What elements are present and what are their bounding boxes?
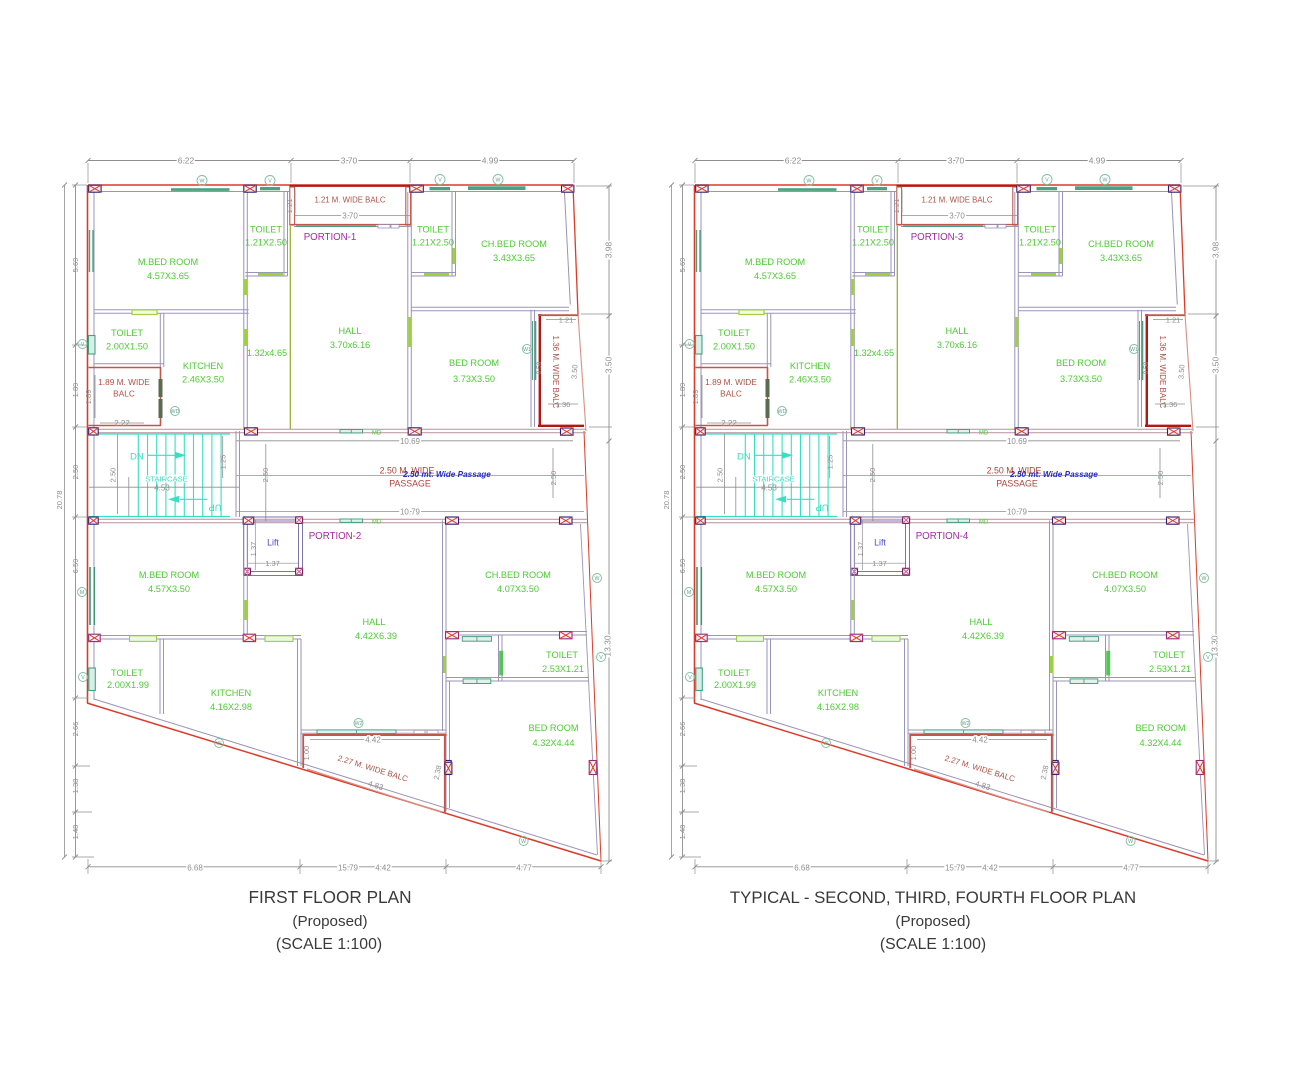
- svg-text:W1: W1: [1130, 347, 1138, 353]
- svg-text:3.98: 3.98: [604, 241, 614, 258]
- svg-text:W: W: [1202, 576, 1207, 582]
- svg-text:WD: WD: [171, 409, 180, 415]
- svg-text:4.42: 4.42: [375, 863, 391, 872]
- svg-text:2.50: 2.50: [549, 471, 558, 486]
- svg-text:10.79: 10.79: [1007, 508, 1028, 517]
- svg-text:1.32x4.65: 1.32x4.65: [247, 348, 287, 358]
- svg-text:W: W: [595, 576, 600, 582]
- svg-text:1.21X2.50: 1.21X2.50: [852, 238, 894, 248]
- svg-text:0.50: 0.50: [1143, 361, 1150, 374]
- svg-text:4.99: 4.99: [1089, 156, 1106, 166]
- svg-text:HALL: HALL: [363, 617, 386, 627]
- svg-text:2.50 mt. Wide Passage: 2.50 mt. Wide Passage: [1009, 470, 1098, 479]
- svg-text:MD: MD: [372, 431, 382, 437]
- svg-text:2.46X3.50: 2.46X3.50: [789, 375, 831, 385]
- svg-text:4.42: 4.42: [982, 863, 998, 872]
- svg-text:UP: UP: [208, 502, 221, 513]
- svg-text:BED ROOM: BED ROOM: [528, 723, 578, 733]
- svg-text:TOILET: TOILET: [250, 225, 282, 235]
- svg-text:TOILET: TOILET: [718, 668, 750, 678]
- svg-text:M.BED ROOM: M.BED ROOM: [139, 570, 199, 580]
- svg-text:4.53: 4.53: [761, 484, 777, 493]
- svg-text:1.89: 1.89: [71, 383, 80, 398]
- svg-text:2.00X1.99: 2.00X1.99: [714, 680, 756, 690]
- svg-text:0.50: 0.50: [536, 361, 543, 374]
- svg-text:M: M: [687, 590, 691, 596]
- svg-text:M.BED ROOM: M.BED ROOM: [138, 257, 198, 267]
- svg-text:15.79: 15.79: [945, 863, 966, 872]
- svg-text:2.00X1.99: 2.00X1.99: [107, 680, 149, 690]
- svg-text:KITCHEN: KITCHEN: [818, 688, 858, 698]
- svg-text:M: M: [80, 590, 84, 596]
- svg-text:3.50: 3.50: [604, 356, 614, 373]
- svg-text:DN: DN: [737, 451, 751, 462]
- svg-text:W: W: [200, 179, 205, 185]
- svg-text:1.21X2.50: 1.21X2.50: [412, 238, 454, 248]
- svg-text:2.53X1.21: 2.53X1.21: [542, 664, 584, 674]
- svg-text:Lift: Lift: [267, 538, 279, 548]
- svg-text:1.21: 1.21: [559, 316, 574, 325]
- svg-text:3.70x6.16: 3.70x6.16: [937, 340, 977, 350]
- svg-text:3.50: 3.50: [1211, 356, 1221, 373]
- svg-text:TOILET: TOILET: [857, 225, 889, 235]
- svg-text:1.89: 1.89: [678, 383, 687, 398]
- svg-text:10.69: 10.69: [400, 437, 421, 446]
- svg-text:1.48: 1.48: [71, 825, 80, 840]
- svg-text:STAIRCASE: STAIRCASE: [752, 474, 794, 483]
- svg-text:HALL: HALL: [339, 326, 362, 336]
- svg-text:V: V: [81, 675, 85, 681]
- svg-text:M.BED ROOM: M.BED ROOM: [746, 570, 806, 580]
- svg-text:4.07X3.50: 4.07X3.50: [497, 584, 539, 594]
- svg-text:4.16X2.98: 4.16X2.98: [210, 702, 252, 712]
- svg-text:BED ROOM: BED ROOM: [1135, 723, 1185, 733]
- svg-text:4.42X6.39: 4.42X6.39: [355, 631, 397, 641]
- svg-text:TOILET: TOILET: [546, 650, 578, 660]
- svg-text:TOILET: TOILET: [417, 225, 449, 235]
- svg-text:3.43X3.65: 3.43X3.65: [493, 253, 535, 263]
- svg-text:PORTION-1: PORTION-1: [304, 232, 357, 243]
- svg-text:3.73X3.50: 3.73X3.50: [1060, 374, 1102, 384]
- svg-text:2.50: 2.50: [678, 465, 687, 480]
- svg-text:M.BED ROOM: M.BED ROOM: [745, 257, 805, 267]
- svg-text:1.38: 1.38: [71, 779, 80, 794]
- svg-text:1.36 M. WIDE BALC: 1.36 M. WIDE BALC: [1158, 336, 1167, 409]
- svg-text:6.68: 6.68: [794, 863, 810, 872]
- svg-text:W: W: [496, 178, 501, 184]
- svg-text:BED ROOM: BED ROOM: [1056, 358, 1106, 368]
- svg-text:3.73X3.50: 3.73X3.50: [453, 374, 495, 384]
- svg-text:2.50: 2.50: [109, 468, 118, 483]
- svg-text:HALL: HALL: [946, 326, 969, 336]
- svg-text:4.32X4.44: 4.32X4.44: [533, 738, 575, 748]
- svg-text:V: V: [1206, 655, 1210, 661]
- svg-text:6.59: 6.59: [71, 559, 80, 574]
- svg-text:6.59: 6.59: [678, 559, 687, 574]
- svg-text:2.66: 2.66: [71, 722, 80, 737]
- svg-text:1.21: 1.21: [285, 199, 294, 214]
- svg-text:FIRST FLOOR PLAN: FIRST FLOOR PLAN: [249, 887, 412, 907]
- svg-text:1.38: 1.38: [678, 779, 687, 794]
- svg-text:W: W: [217, 741, 222, 747]
- svg-text:TOILET: TOILET: [1024, 225, 1056, 235]
- svg-text:4.57X3.50: 4.57X3.50: [755, 584, 797, 594]
- svg-text:1.36: 1.36: [1163, 400, 1178, 409]
- svg-text:4.42: 4.42: [365, 736, 381, 745]
- svg-text:CH.BED ROOM: CH.BED ROOM: [481, 239, 547, 249]
- svg-text:4.57X3.50: 4.57X3.50: [148, 584, 190, 594]
- svg-text:WD: WD: [778, 409, 787, 415]
- svg-text:5.69: 5.69: [678, 258, 687, 273]
- svg-text:V: V: [438, 178, 442, 184]
- svg-text:6.22: 6.22: [178, 156, 195, 166]
- svg-text:15.79: 15.79: [338, 863, 359, 872]
- svg-text:MD: MD: [372, 520, 382, 526]
- svg-text:2.22: 2.22: [721, 419, 737, 428]
- svg-text:1.21: 1.21: [1166, 316, 1181, 325]
- svg-text:2.50 mt. Wide Passage: 2.50 mt. Wide Passage: [402, 470, 491, 479]
- svg-text:UP: UP: [815, 502, 828, 513]
- svg-text:TOILET: TOILET: [1153, 650, 1185, 660]
- svg-text:W2: W2: [355, 721, 363, 727]
- svg-text:KITCHEN: KITCHEN: [211, 688, 251, 698]
- svg-text:1.00: 1.00: [302, 746, 311, 761]
- svg-text:1.89 M. WIDE: 1.89 M. WIDE: [98, 377, 150, 387]
- svg-text:HALL: HALL: [970, 617, 993, 627]
- svg-text:TOILET: TOILET: [111, 668, 143, 678]
- svg-text:1.48: 1.48: [678, 825, 687, 840]
- svg-text:2.50: 2.50: [716, 468, 725, 483]
- svg-text:4.42X6.39: 4.42X6.39: [962, 631, 1004, 641]
- svg-text:4.99: 4.99: [482, 156, 499, 166]
- svg-text:1.37: 1.37: [856, 542, 865, 557]
- svg-text:3.50: 3.50: [570, 364, 580, 379]
- svg-text:10.79: 10.79: [400, 508, 421, 517]
- svg-text:3.70: 3.70: [342, 212, 358, 221]
- svg-text:4.42: 4.42: [972, 736, 988, 745]
- svg-text:1.37: 1.37: [249, 542, 258, 557]
- svg-text:4.57X3.65: 4.57X3.65: [754, 271, 796, 281]
- svg-text:DN: DN: [130, 451, 144, 462]
- svg-text:1.89 M. WIDE: 1.89 M. WIDE: [705, 377, 757, 387]
- svg-text:W: W: [1103, 178, 1108, 184]
- svg-text:W: W: [807, 179, 812, 185]
- svg-text:PORTION-4: PORTION-4: [916, 531, 969, 542]
- svg-text:V: V: [599, 655, 603, 661]
- svg-text:3.98: 3.98: [1211, 241, 1221, 258]
- svg-text:2.50: 2.50: [1156, 471, 1165, 486]
- svg-text:1.21 M. WIDE BALC: 1.21 M. WIDE BALC: [314, 196, 385, 205]
- svg-text:TOILET: TOILET: [718, 328, 750, 338]
- svg-text:2.50: 2.50: [71, 465, 80, 480]
- svg-text:1.21: 1.21: [892, 199, 901, 214]
- svg-text:TYPICAL - SECOND, THIRD, FOURT: TYPICAL - SECOND, THIRD, FOURTH FLOOR PL…: [730, 888, 1136, 907]
- svg-text:V: V: [81, 342, 85, 348]
- svg-text:2.22: 2.22: [114, 419, 130, 428]
- svg-text:V: V: [1045, 178, 1049, 184]
- svg-text:1.00: 1.00: [909, 746, 918, 761]
- svg-text:4.07X3.50: 4.07X3.50: [1104, 584, 1146, 594]
- svg-text:(Proposed): (Proposed): [895, 913, 970, 930]
- svg-text:1.32x4.65: 1.32x4.65: [854, 348, 894, 358]
- svg-text:20.78: 20.78: [55, 491, 64, 510]
- svg-text:W: W: [521, 839, 526, 845]
- svg-text:4.53: 4.53: [154, 484, 170, 493]
- svg-text:CH.BED ROOM: CH.BED ROOM: [485, 570, 551, 580]
- svg-text:2.00X1.50: 2.00X1.50: [106, 342, 148, 352]
- svg-text:1.21X2.50: 1.21X2.50: [245, 238, 287, 248]
- svg-text:20.78: 20.78: [662, 491, 671, 510]
- svg-text:BED ROOM: BED ROOM: [449, 358, 499, 368]
- svg-text:4.16X2.98: 4.16X2.98: [817, 702, 859, 712]
- svg-text:1.36: 1.36: [556, 400, 571, 409]
- svg-text:PORTION-2: PORTION-2: [309, 531, 362, 542]
- svg-text:V: V: [268, 179, 272, 185]
- svg-text:MD: MD: [979, 431, 989, 437]
- svg-text:KITCHEN: KITCHEN: [183, 361, 223, 371]
- svg-text:1.89: 1.89: [84, 390, 93, 405]
- svg-text:TOILET: TOILET: [111, 328, 143, 338]
- svg-text:4.32X4.44: 4.32X4.44: [1140, 738, 1182, 748]
- svg-text:3.70: 3.70: [341, 156, 358, 166]
- svg-text:1.89: 1.89: [691, 390, 700, 405]
- svg-text:STAIRCASE: STAIRCASE: [145, 474, 187, 483]
- svg-text:2.46X3.50: 2.46X3.50: [182, 375, 224, 385]
- svg-text:PASSAGE: PASSAGE: [996, 479, 1038, 489]
- svg-text:V: V: [688, 342, 692, 348]
- svg-text:3.70: 3.70: [949, 212, 965, 221]
- svg-text:CH.BED ROOM: CH.BED ROOM: [1088, 239, 1154, 249]
- svg-text:1.21 M. WIDE BALC: 1.21 M. WIDE BALC: [921, 196, 992, 205]
- svg-text:3.70: 3.70: [948, 156, 965, 166]
- svg-text:W: W: [824, 741, 829, 747]
- svg-text:KITCHEN: KITCHEN: [790, 361, 830, 371]
- svg-text:10.69: 10.69: [1007, 437, 1028, 446]
- svg-text:BALC: BALC: [720, 389, 742, 399]
- svg-text:6.68: 6.68: [187, 863, 203, 872]
- svg-text:3.70x6.16: 3.70x6.16: [330, 340, 370, 350]
- svg-text:(SCALE 1:100): (SCALE 1:100): [276, 936, 382, 953]
- svg-text:(SCALE 1:100): (SCALE 1:100): [880, 936, 986, 953]
- svg-text:4.77: 4.77: [516, 863, 532, 872]
- svg-text:1.21X2.50: 1.21X2.50: [1019, 238, 1061, 248]
- svg-text:V: V: [875, 179, 879, 185]
- svg-text:W1: W1: [523, 347, 531, 353]
- svg-text:3.50: 3.50: [1177, 364, 1187, 379]
- svg-text:W2: W2: [962, 721, 970, 727]
- svg-text:Lift: Lift: [874, 538, 886, 548]
- svg-text:4.57X3.65: 4.57X3.65: [147, 271, 189, 281]
- svg-text:1.36 M. WIDE BALC: 1.36 M. WIDE BALC: [551, 336, 560, 409]
- svg-text:5.69: 5.69: [71, 258, 80, 273]
- svg-text:BALC: BALC: [113, 389, 135, 399]
- svg-text:PORTION-3: PORTION-3: [911, 232, 964, 243]
- svg-text:4.77: 4.77: [1123, 863, 1139, 872]
- svg-text:2.00X1.50: 2.00X1.50: [713, 342, 755, 352]
- svg-text:2.53X1.21: 2.53X1.21: [1149, 664, 1191, 674]
- svg-text:CH.BED ROOM: CH.BED ROOM: [1092, 570, 1158, 580]
- svg-text:MD: MD: [979, 520, 989, 526]
- svg-text:6.22: 6.22: [785, 156, 802, 166]
- svg-text:V: V: [688, 675, 692, 681]
- svg-text:(Proposed): (Proposed): [292, 913, 367, 930]
- svg-text:W: W: [1128, 839, 1133, 845]
- svg-text:3.43X3.65: 3.43X3.65: [1100, 253, 1142, 263]
- svg-text:PASSAGE: PASSAGE: [389, 479, 431, 489]
- svg-text:2.66: 2.66: [678, 722, 687, 737]
